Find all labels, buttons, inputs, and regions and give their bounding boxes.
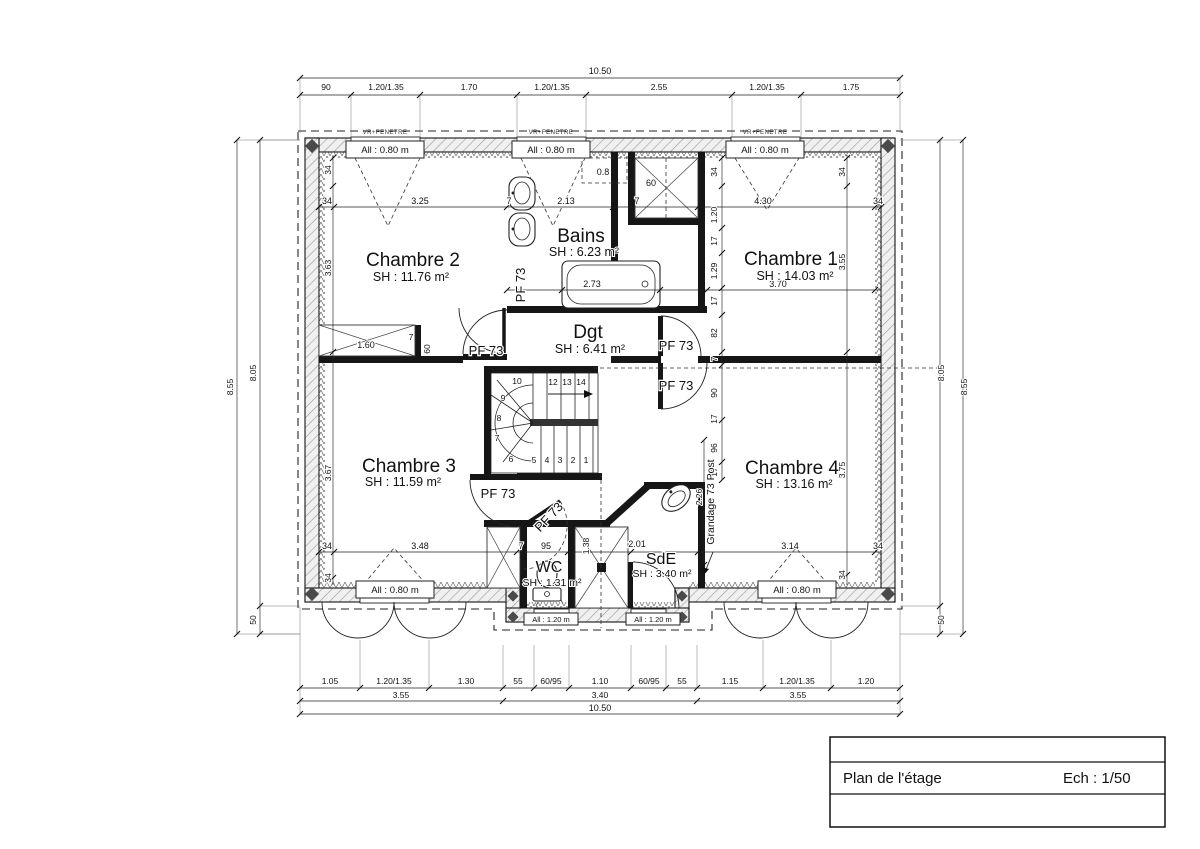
dim-label: 3.40	[592, 690, 609, 700]
stair-step-number: 13	[562, 377, 572, 387]
floor-plan-drawing: All : 0.80 m All : 0.80 m All : 0.80 m A…	[0, 0, 1200, 849]
window-label: All : 0.80 m	[773, 585, 821, 596]
dim-label: 34	[322, 196, 332, 206]
alcove: 0.8	[582, 158, 627, 183]
dim-label: 2.13	[557, 196, 575, 206]
dim-label: 3.48	[411, 541, 429, 551]
dim-label: 34	[323, 573, 333, 583]
dim-label: 55	[513, 676, 523, 686]
dim-label: 2.73	[583, 279, 601, 289]
closet-top	[635, 158, 698, 218]
stair-step-number: 8	[497, 413, 502, 423]
dim-label: 96	[709, 443, 719, 453]
dim-label: 3.67	[323, 464, 333, 481]
dim-label: 7	[518, 541, 523, 551]
dim-label: 8.55	[959, 378, 969, 395]
dim-label: 17	[709, 414, 719, 424]
dim-label: 34	[322, 541, 332, 551]
dim-label: 1.05	[322, 676, 339, 686]
dim-label: 50	[936, 615, 946, 625]
room-name-bains: Bains	[557, 226, 605, 247]
title-block-scale: Ech : 1/50	[1063, 770, 1131, 787]
dim-label: 3.63	[323, 259, 333, 276]
dim-label: 17	[709, 236, 719, 246]
room-name-dgt: Dgt	[573, 322, 603, 343]
dim-label: 34	[837, 570, 847, 580]
dim-label: 1.20/1.35	[376, 676, 412, 686]
stair-step-number: 12	[548, 377, 558, 387]
dim-label: 8.05	[936, 364, 946, 381]
stair-step-number: 3	[558, 455, 563, 465]
room-area-wc: SH : 1.31 m²	[523, 577, 582, 589]
dim-label: 95	[541, 541, 551, 551]
room-area-chambre3: SH : 11.59 m²	[365, 475, 441, 489]
stair-direction-arrow	[548, 390, 593, 398]
room-name-chambre3: Chambre 3	[362, 456, 456, 477]
dim-label: 34	[873, 196, 883, 206]
roller-blind-label: VR+FENETRE	[529, 130, 574, 136]
title-block-name: Plan de l'étage	[843, 770, 942, 787]
dim-label: 1.29	[709, 262, 719, 279]
title-block: Plan de l'étage Ech : 1/50	[830, 737, 1165, 827]
dim-label: 1.20	[709, 206, 719, 223]
room-area-dgt: SH : 6.41 m²	[555, 342, 625, 356]
dim-label: 2.01	[628, 539, 646, 549]
dim-label: 3.55	[837, 253, 847, 270]
dim-label: 1.20/1.35	[534, 82, 570, 92]
dim-label: 2.55	[651, 82, 668, 92]
dim-label: 34	[709, 167, 719, 177]
door-label: PF 73	[659, 378, 694, 393]
stair-step-number: 9	[501, 393, 506, 403]
dim-label: 34	[873, 541, 883, 551]
room-area-sde: SH : 3.40 m²	[633, 568, 692, 580]
dim-label: 17	[709, 296, 719, 306]
dim-left: 8.55 8.05 50	[225, 137, 263, 637]
dim-label: 8.05	[248, 364, 258, 381]
room-name-chambre1: Chambre 1	[744, 249, 838, 270]
dim-label: 90	[709, 388, 719, 398]
roller-blind-label: VR+FENETRE	[363, 130, 408, 136]
dim-label: 90	[321, 82, 331, 92]
window-label: All : 0.80 m	[371, 585, 419, 596]
dim-bottom: 1.05 1.20/1.35 1.30 55 60/95 1.10 60/95 …	[297, 676, 903, 717]
dim-label: 50	[248, 615, 258, 625]
dim-label: 3.14	[781, 541, 799, 551]
window-label: All : 1.20 m	[634, 615, 672, 624]
sink	[509, 213, 535, 246]
dim-label: 60	[646, 178, 656, 188]
sink	[509, 177, 535, 210]
room-area-bains: SH : 6.23 m²	[549, 245, 619, 259]
room-name-chambre4: Chambre 4	[745, 458, 839, 479]
door-label: PF 73	[469, 343, 504, 358]
window-label: All : 0.80 m	[741, 145, 789, 156]
stair-step-number: 2	[571, 455, 576, 465]
dim-label: 4.30	[754, 196, 772, 206]
roller-blind-label: VR+FENETRE	[743, 130, 788, 136]
room-area-chambre4: SH : 13.16 m²	[755, 477, 832, 491]
page: { "title_block": { "title": "Plan de l'é…	[0, 0, 1200, 849]
room-name-sde: SdE	[646, 551, 676, 568]
dim-label: 60	[422, 344, 432, 354]
dim-label: 82	[709, 328, 719, 338]
dim-label: 3.55	[393, 690, 410, 700]
dim-label: 10.50	[589, 703, 612, 713]
dim-label: 1.70	[461, 82, 478, 92]
room-area-chambre1: SH : 14.03 m²	[756, 269, 833, 283]
dim-label: 7	[506, 196, 511, 206]
closet-hall	[487, 527, 520, 588]
stair-step-number: 1	[584, 455, 589, 465]
dim-label: 0.8	[597, 167, 610, 177]
door-label: PF 73	[481, 486, 516, 501]
stair-step-number: 7	[495, 433, 500, 443]
dim-label: 7	[409, 332, 414, 342]
dim-label: 10.50	[589, 66, 612, 76]
room-area-chambre2: SH : 11.76 m²	[373, 270, 449, 284]
dim-label: 60/95	[638, 676, 660, 686]
dim-right: 8.05 50 8.55	[936, 137, 969, 637]
stair-step-number: 4	[545, 455, 550, 465]
window-label: All : 0.80 m	[361, 145, 409, 156]
dim-label: 3.25	[411, 196, 429, 206]
dim-label: 34	[837, 167, 847, 177]
dim-label: 1.60	[357, 340, 375, 350]
dim-label: 1.10	[592, 676, 609, 686]
stair-step-number: 6	[509, 454, 514, 464]
stair-step-number: 5	[532, 455, 537, 465]
dim-label: 34	[323, 165, 333, 175]
stair-step-number: 14	[576, 377, 586, 387]
stair-step-number: 10	[512, 376, 522, 386]
dim-top: 10.50 90 1.20/1.35 1.70 1.20/1.35 2.55 1…	[297, 66, 903, 98]
dim-label: 1.20	[858, 676, 875, 686]
staircase: 1 2 3 4 5 6 7 8 9 10 12 13 14	[491, 373, 598, 473]
door-label: PF 73	[513, 268, 528, 303]
window-label: All : 0.80 m	[527, 145, 575, 156]
dim-label: 1.30	[458, 676, 475, 686]
dim-label: 1.15	[722, 676, 739, 686]
dim-label: 3.55	[790, 690, 807, 700]
dim-label: 1.20/1.35	[779, 676, 815, 686]
post-label: Grandage 73 Post	[705, 459, 717, 544]
dim-label: 8.55	[225, 378, 235, 395]
dim-label: 1.20/1.35	[368, 82, 404, 92]
dim-label: 7	[709, 356, 719, 361]
dim-label: 1.75	[843, 82, 860, 92]
room-name-wc: WC	[536, 559, 563, 576]
door-label: PF 73	[659, 338, 694, 353]
dim-label: 7	[634, 196, 639, 206]
dim-label: 55	[677, 676, 687, 686]
dim-label: 1.38	[581, 537, 591, 554]
bathtub	[562, 261, 660, 308]
dim-label: 2.26	[694, 488, 704, 505]
window-label: All : 1.20 m	[532, 615, 570, 624]
dim-label: 1.20/1.35	[749, 82, 785, 92]
dim-label: 60/95	[540, 676, 562, 686]
room-name-chambre2: Chambre 2	[366, 250, 460, 271]
